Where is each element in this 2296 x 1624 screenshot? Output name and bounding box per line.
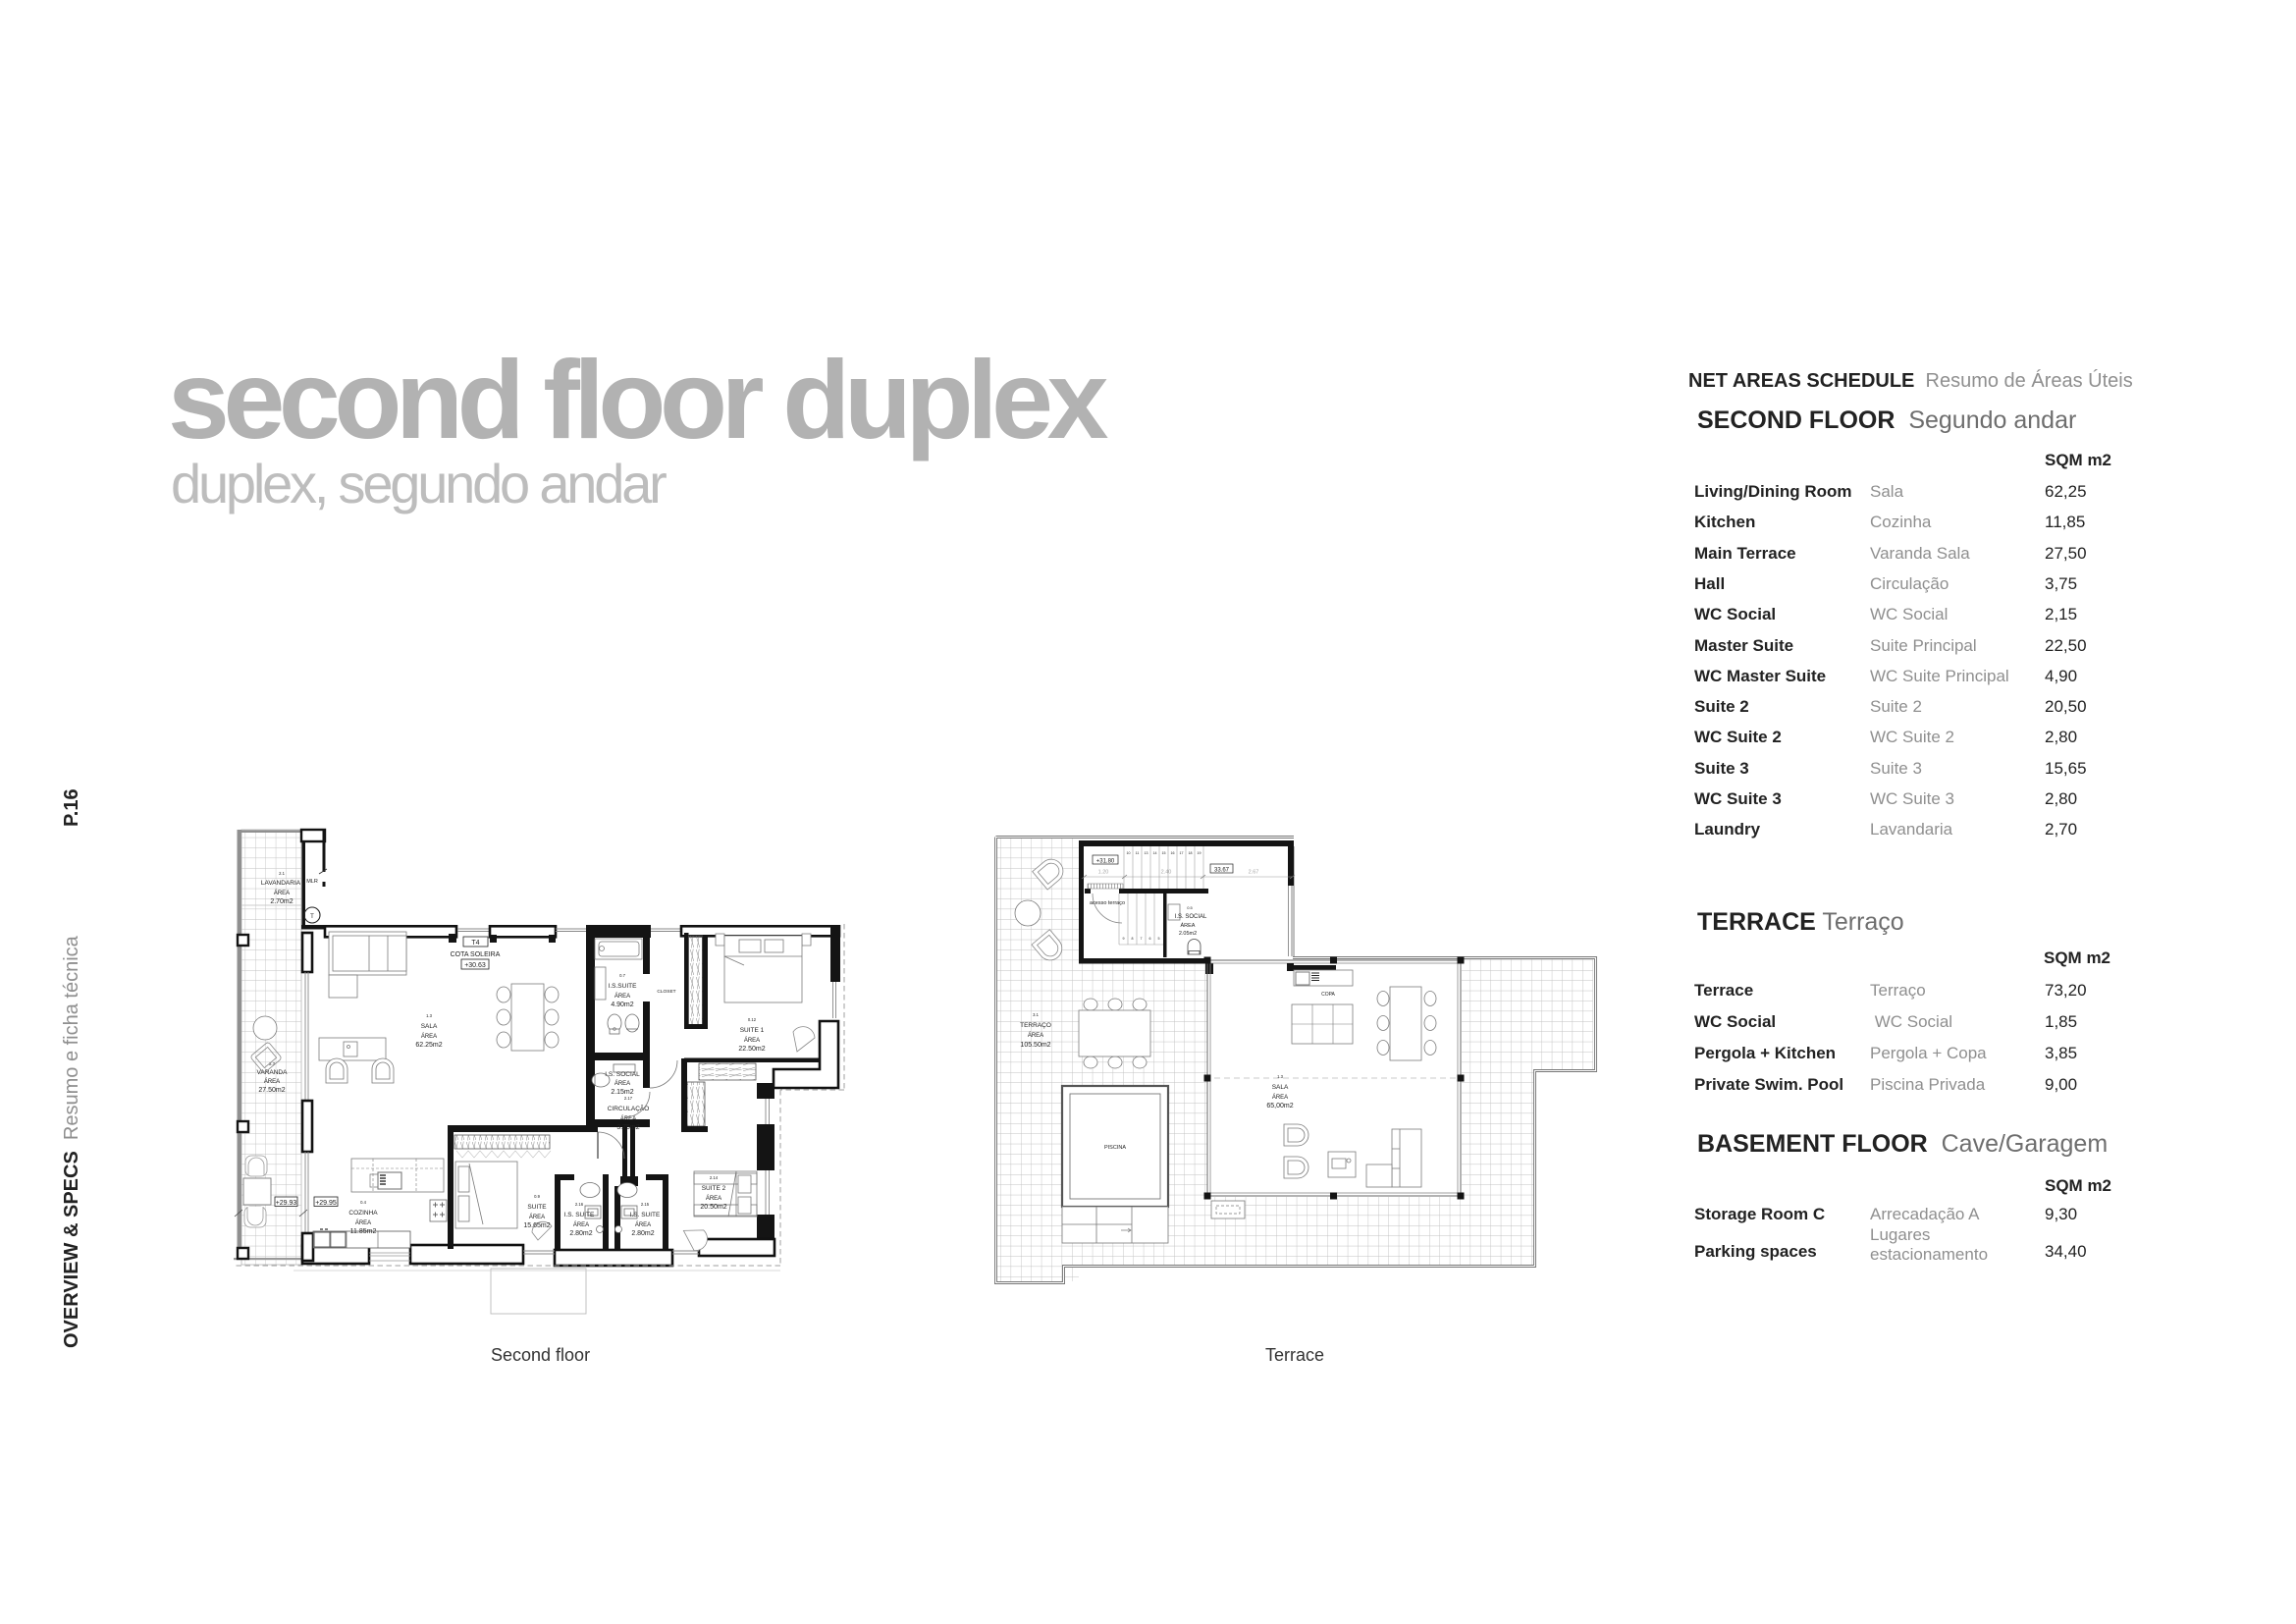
svg-text:2.3: 2.3	[269, 1061, 275, 1066]
svg-text:+29.93: +29.93	[276, 1200, 297, 1207]
svg-text:MLR: MLR	[306, 879, 318, 885]
svg-text:I.S. SOCIAL: I.S. SOCIAL	[605, 1071, 640, 1078]
svg-text:105.50m2: 105.50m2	[1020, 1042, 1050, 1049]
svg-text:I.S. SUITE: I.S. SUITE	[630, 1212, 661, 1218]
svg-text:9: 9	[1123, 937, 1125, 941]
svg-text:11.85m2: 11.85m2	[350, 1228, 377, 1235]
svg-text:20.50m2: 20.50m2	[700, 1204, 726, 1211]
svg-text:+31.80: +31.80	[1096, 858, 1115, 864]
svg-text:7: 7	[1141, 937, 1143, 941]
svg-text:+30.63: +30.63	[464, 962, 486, 969]
svg-text:ÁREA: ÁREA	[421, 1033, 437, 1040]
svg-text:16: 16	[1171, 851, 1175, 855]
svg-text:0.9: 0.9	[534, 1194, 540, 1199]
svg-text:2.40: 2.40	[1161, 870, 1172, 876]
svg-text:14: 14	[1153, 851, 1157, 855]
svg-text:I.S. SUITE: I.S. SUITE	[564, 1212, 595, 1218]
svg-text:2.70m2: 2.70m2	[270, 898, 293, 905]
svg-text:2.1: 2.1	[279, 871, 285, 876]
svg-text:2.14: 2.14	[710, 1175, 719, 1180]
svg-text:ÁREA: ÁREA	[1181, 922, 1196, 929]
svg-text:COTA SOLEIRA: COTA SOLEIRA	[451, 951, 501, 958]
svg-text:ÁREA: ÁREA	[529, 1214, 545, 1220]
svg-text:LAVANDARIA: LAVANDARIA	[261, 880, 301, 887]
svg-text:5: 5	[1158, 937, 1160, 941]
svg-text:1.20: 1.20	[1098, 870, 1109, 876]
svg-text:15: 15	[1162, 851, 1166, 855]
svg-text:COPA: COPA	[1321, 992, 1335, 998]
svg-text:33.67: 33.67	[1214, 867, 1230, 873]
svg-text:13: 13	[1145, 851, 1148, 855]
svg-text:SUITE 1: SUITE 1	[740, 1027, 765, 1034]
svg-text:17: 17	[1180, 851, 1184, 855]
svg-text:SALA: SALA	[421, 1023, 438, 1030]
svg-text:ÁREA: ÁREA	[274, 890, 290, 896]
svg-text:I.S. SOCIAL: I.S. SOCIAL	[1175, 914, 1207, 920]
svg-text:ÁREA: ÁREA	[614, 1080, 630, 1087]
svg-text:22.50m2: 22.50m2	[738, 1046, 765, 1053]
svg-text:2.80m2: 2.80m2	[569, 1230, 592, 1237]
svg-text:2.05m2: 2.05m2	[1179, 931, 1197, 937]
svg-text:1.3: 1.3	[1277, 1074, 1283, 1079]
svg-text:27.50m2: 27.50m2	[258, 1087, 285, 1094]
svg-text:ÁREA: ÁREA	[635, 1221, 651, 1228]
svg-text:COZINHA: COZINHA	[348, 1210, 378, 1217]
svg-text:ÁREA: ÁREA	[573, 1221, 589, 1228]
svg-text:SUITE 2: SUITE 2	[702, 1185, 726, 1192]
svg-text:1.3: 1.3	[426, 1013, 432, 1018]
svg-text:SALA: SALA	[1272, 1084, 1289, 1091]
svg-text:2.67: 2.67	[1249, 870, 1259, 876]
svg-text:2.16: 2.16	[575, 1202, 584, 1207]
svg-text:3.1: 3.1	[1033, 1012, 1039, 1017]
svg-text:ÁREA: ÁREA	[1028, 1032, 1043, 1039]
svg-text:CIRCULAÇÃO: CIRCULAÇÃO	[608, 1104, 650, 1112]
svg-text:11: 11	[1136, 851, 1140, 855]
svg-text:T4: T4	[471, 940, 479, 947]
svg-text:3.75m2: 3.75m2	[616, 1124, 639, 1131]
svg-text:ÁREA: ÁREA	[264, 1078, 280, 1085]
svg-text:I.S.SUITE: I.S.SUITE	[609, 983, 638, 990]
svg-text:0.4: 0.4	[360, 1200, 366, 1205]
svg-text:10: 10	[1127, 851, 1131, 855]
svg-text:ÁREA: ÁREA	[706, 1195, 721, 1202]
svg-text:0.12: 0.12	[748, 1017, 757, 1022]
svg-text:ÁREA: ÁREA	[620, 1115, 636, 1122]
svg-text:62.25m2: 62.25m2	[415, 1042, 442, 1049]
svg-text:ÁREA: ÁREA	[744, 1037, 760, 1044]
svg-text:15.65m2: 15.65m2	[523, 1222, 550, 1229]
svg-text:6: 6	[1149, 937, 1151, 941]
svg-text:+29.95: +29.95	[315, 1200, 337, 1207]
svg-text:CLOSET: CLOSET	[657, 989, 675, 995]
svg-text:ÁREA: ÁREA	[1272, 1094, 1288, 1101]
svg-text:65,00m2: 65,00m2	[1266, 1103, 1293, 1110]
svg-text:ÁREA: ÁREA	[355, 1219, 371, 1226]
svg-text:0.7: 0.7	[619, 973, 625, 978]
svg-text:2.15: 2.15	[641, 1202, 650, 1207]
svg-text:2.17: 2.17	[624, 1096, 633, 1101]
svg-text:0.5: 0.5	[1187, 905, 1193, 910]
svg-text:2.80m2: 2.80m2	[631, 1230, 654, 1237]
svg-text:SUITE: SUITE	[527, 1204, 547, 1211]
svg-text:8: 8	[1132, 937, 1134, 941]
svg-text:acesso terraço: acesso terraço	[1090, 900, 1125, 906]
svg-text:PISCINA: PISCINA	[1104, 1145, 1126, 1151]
svg-text:4.90m2: 4.90m2	[611, 1001, 633, 1008]
svg-text:2.15m2: 2.15m2	[611, 1089, 633, 1096]
svg-text:T: T	[310, 914, 314, 920]
svg-text:18: 18	[1189, 851, 1193, 855]
svg-text:19: 19	[1198, 851, 1201, 855]
svg-text:TERRAÇO: TERRAÇO	[1020, 1022, 1051, 1029]
svg-text:ÁREA: ÁREA	[614, 993, 630, 1000]
